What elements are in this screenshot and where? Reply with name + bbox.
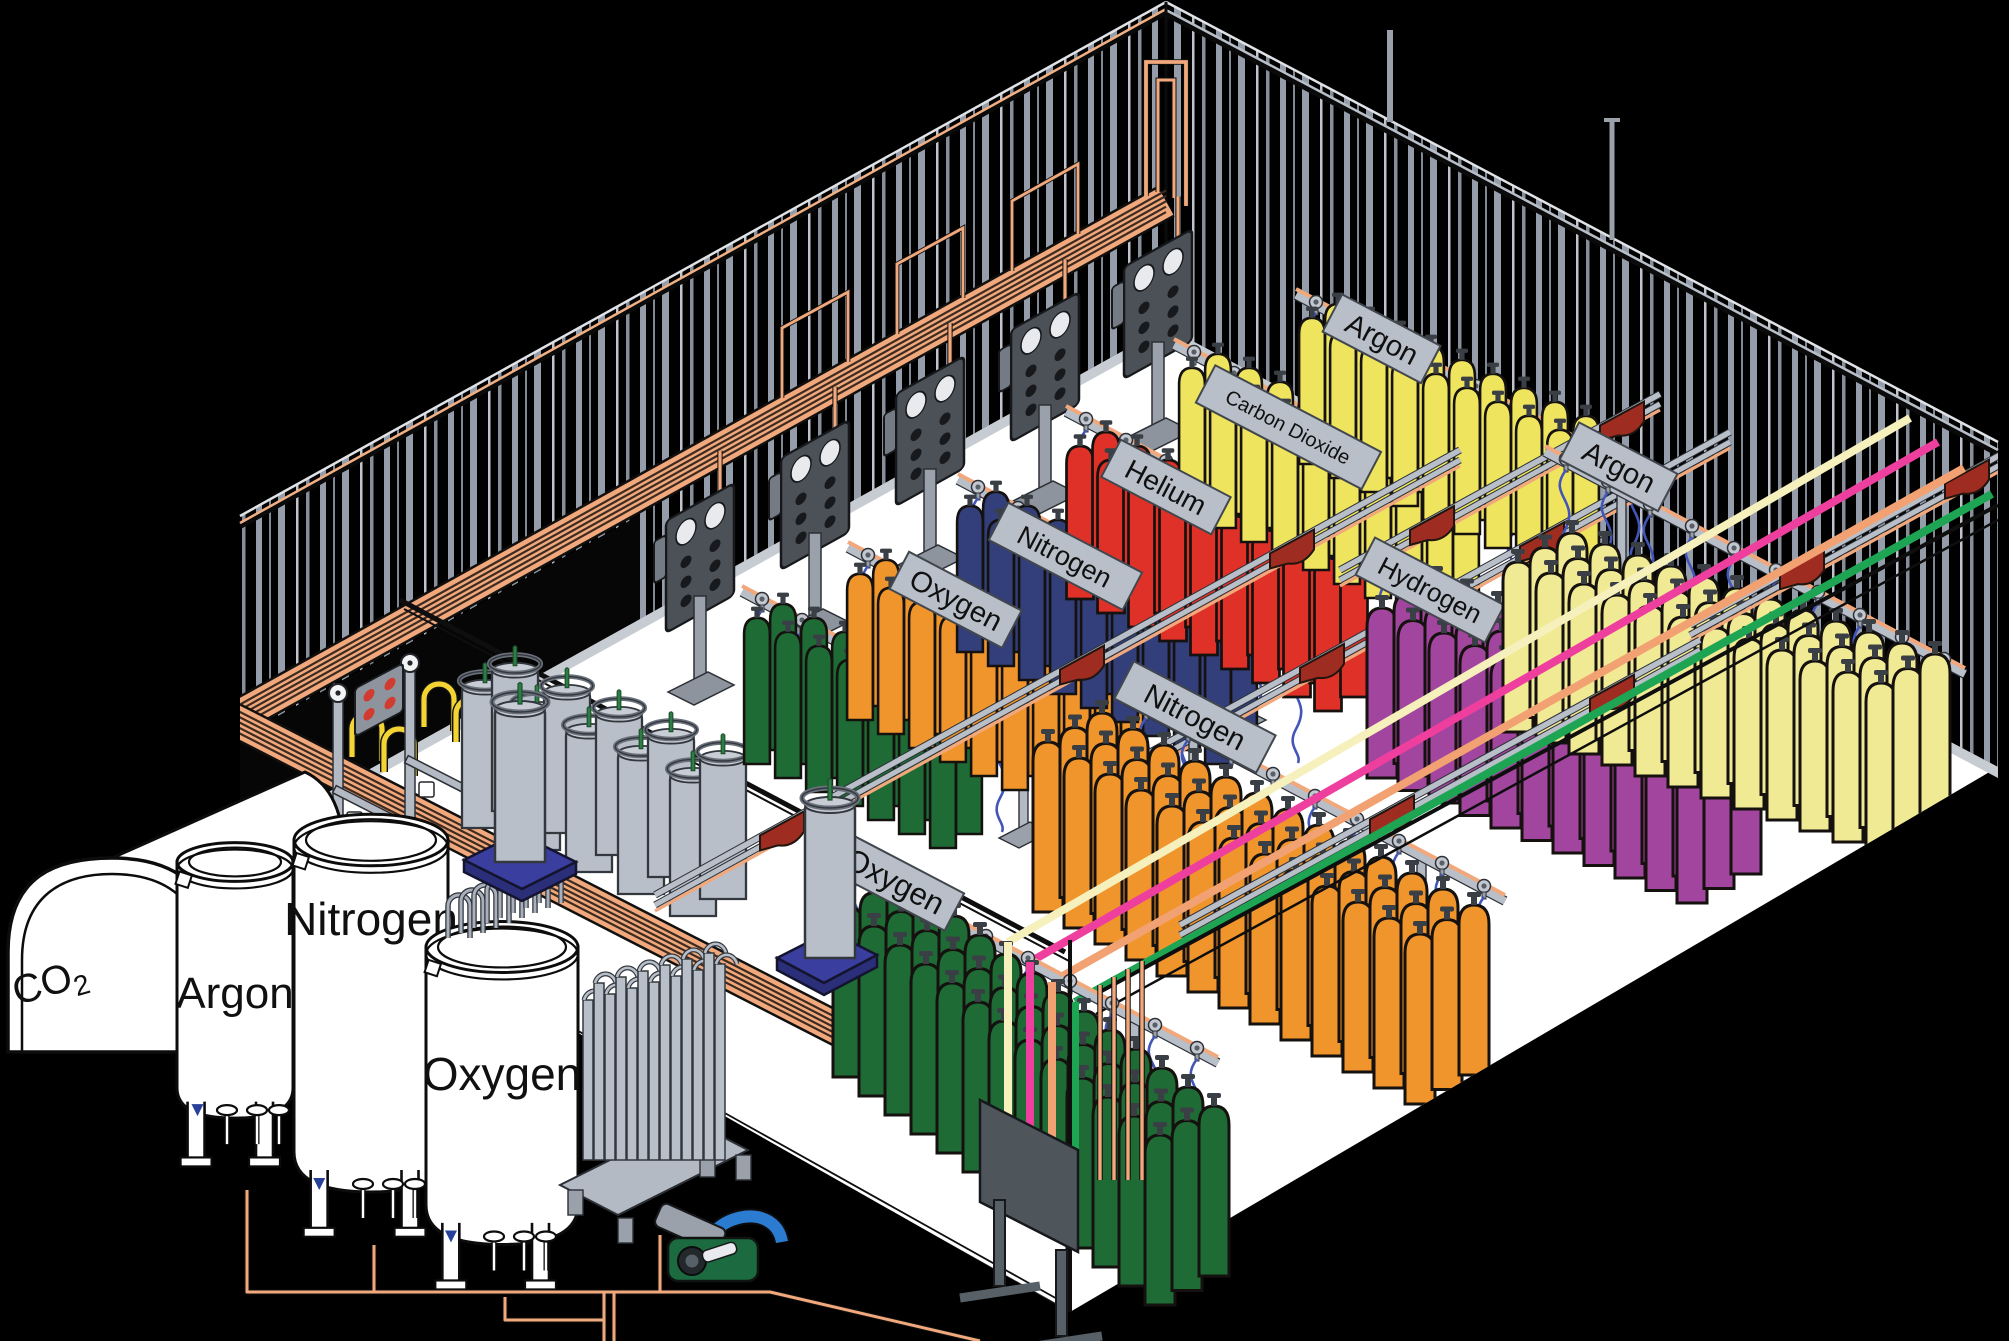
svg-text:Oxygen: Oxygen [423,1048,582,1100]
svg-text:Argon: Argon [176,969,293,1018]
